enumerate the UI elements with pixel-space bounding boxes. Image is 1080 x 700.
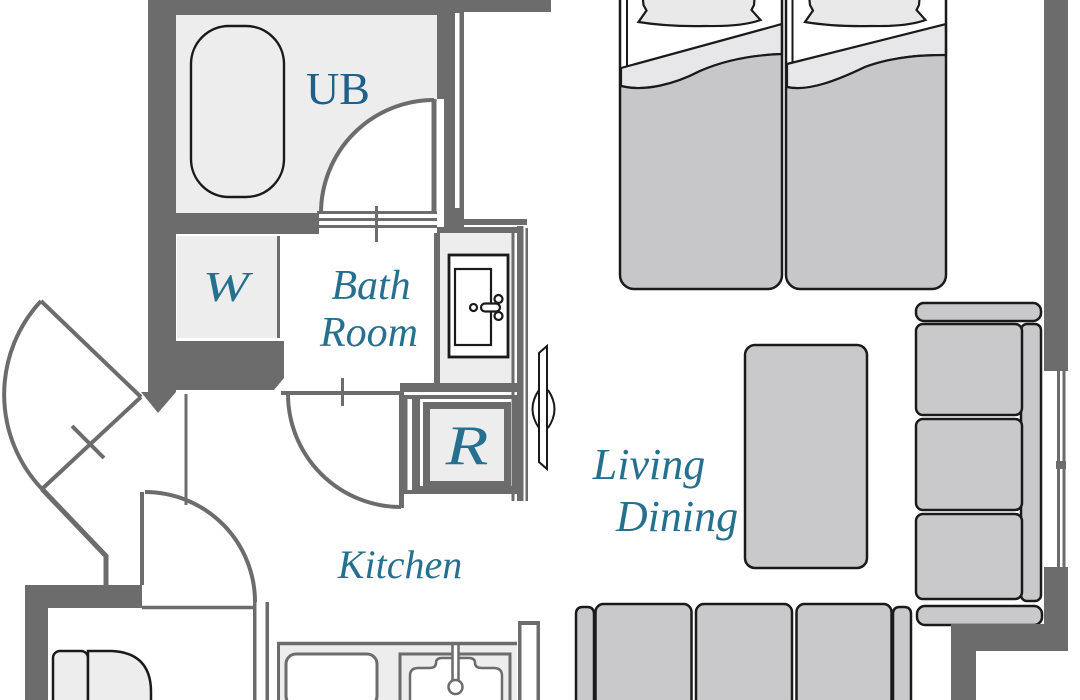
svg-text:Dining: Dining xyxy=(615,492,738,541)
svg-text:Kitchen: Kitchen xyxy=(337,542,462,587)
svg-text:W: W xyxy=(203,263,254,310)
svg-text:Room: Room xyxy=(319,310,418,356)
svg-text:R: R xyxy=(445,415,489,477)
svg-text:Living: Living xyxy=(592,440,705,489)
svg-text:UB: UB xyxy=(306,63,370,114)
svg-text:Bath: Bath xyxy=(331,263,410,309)
